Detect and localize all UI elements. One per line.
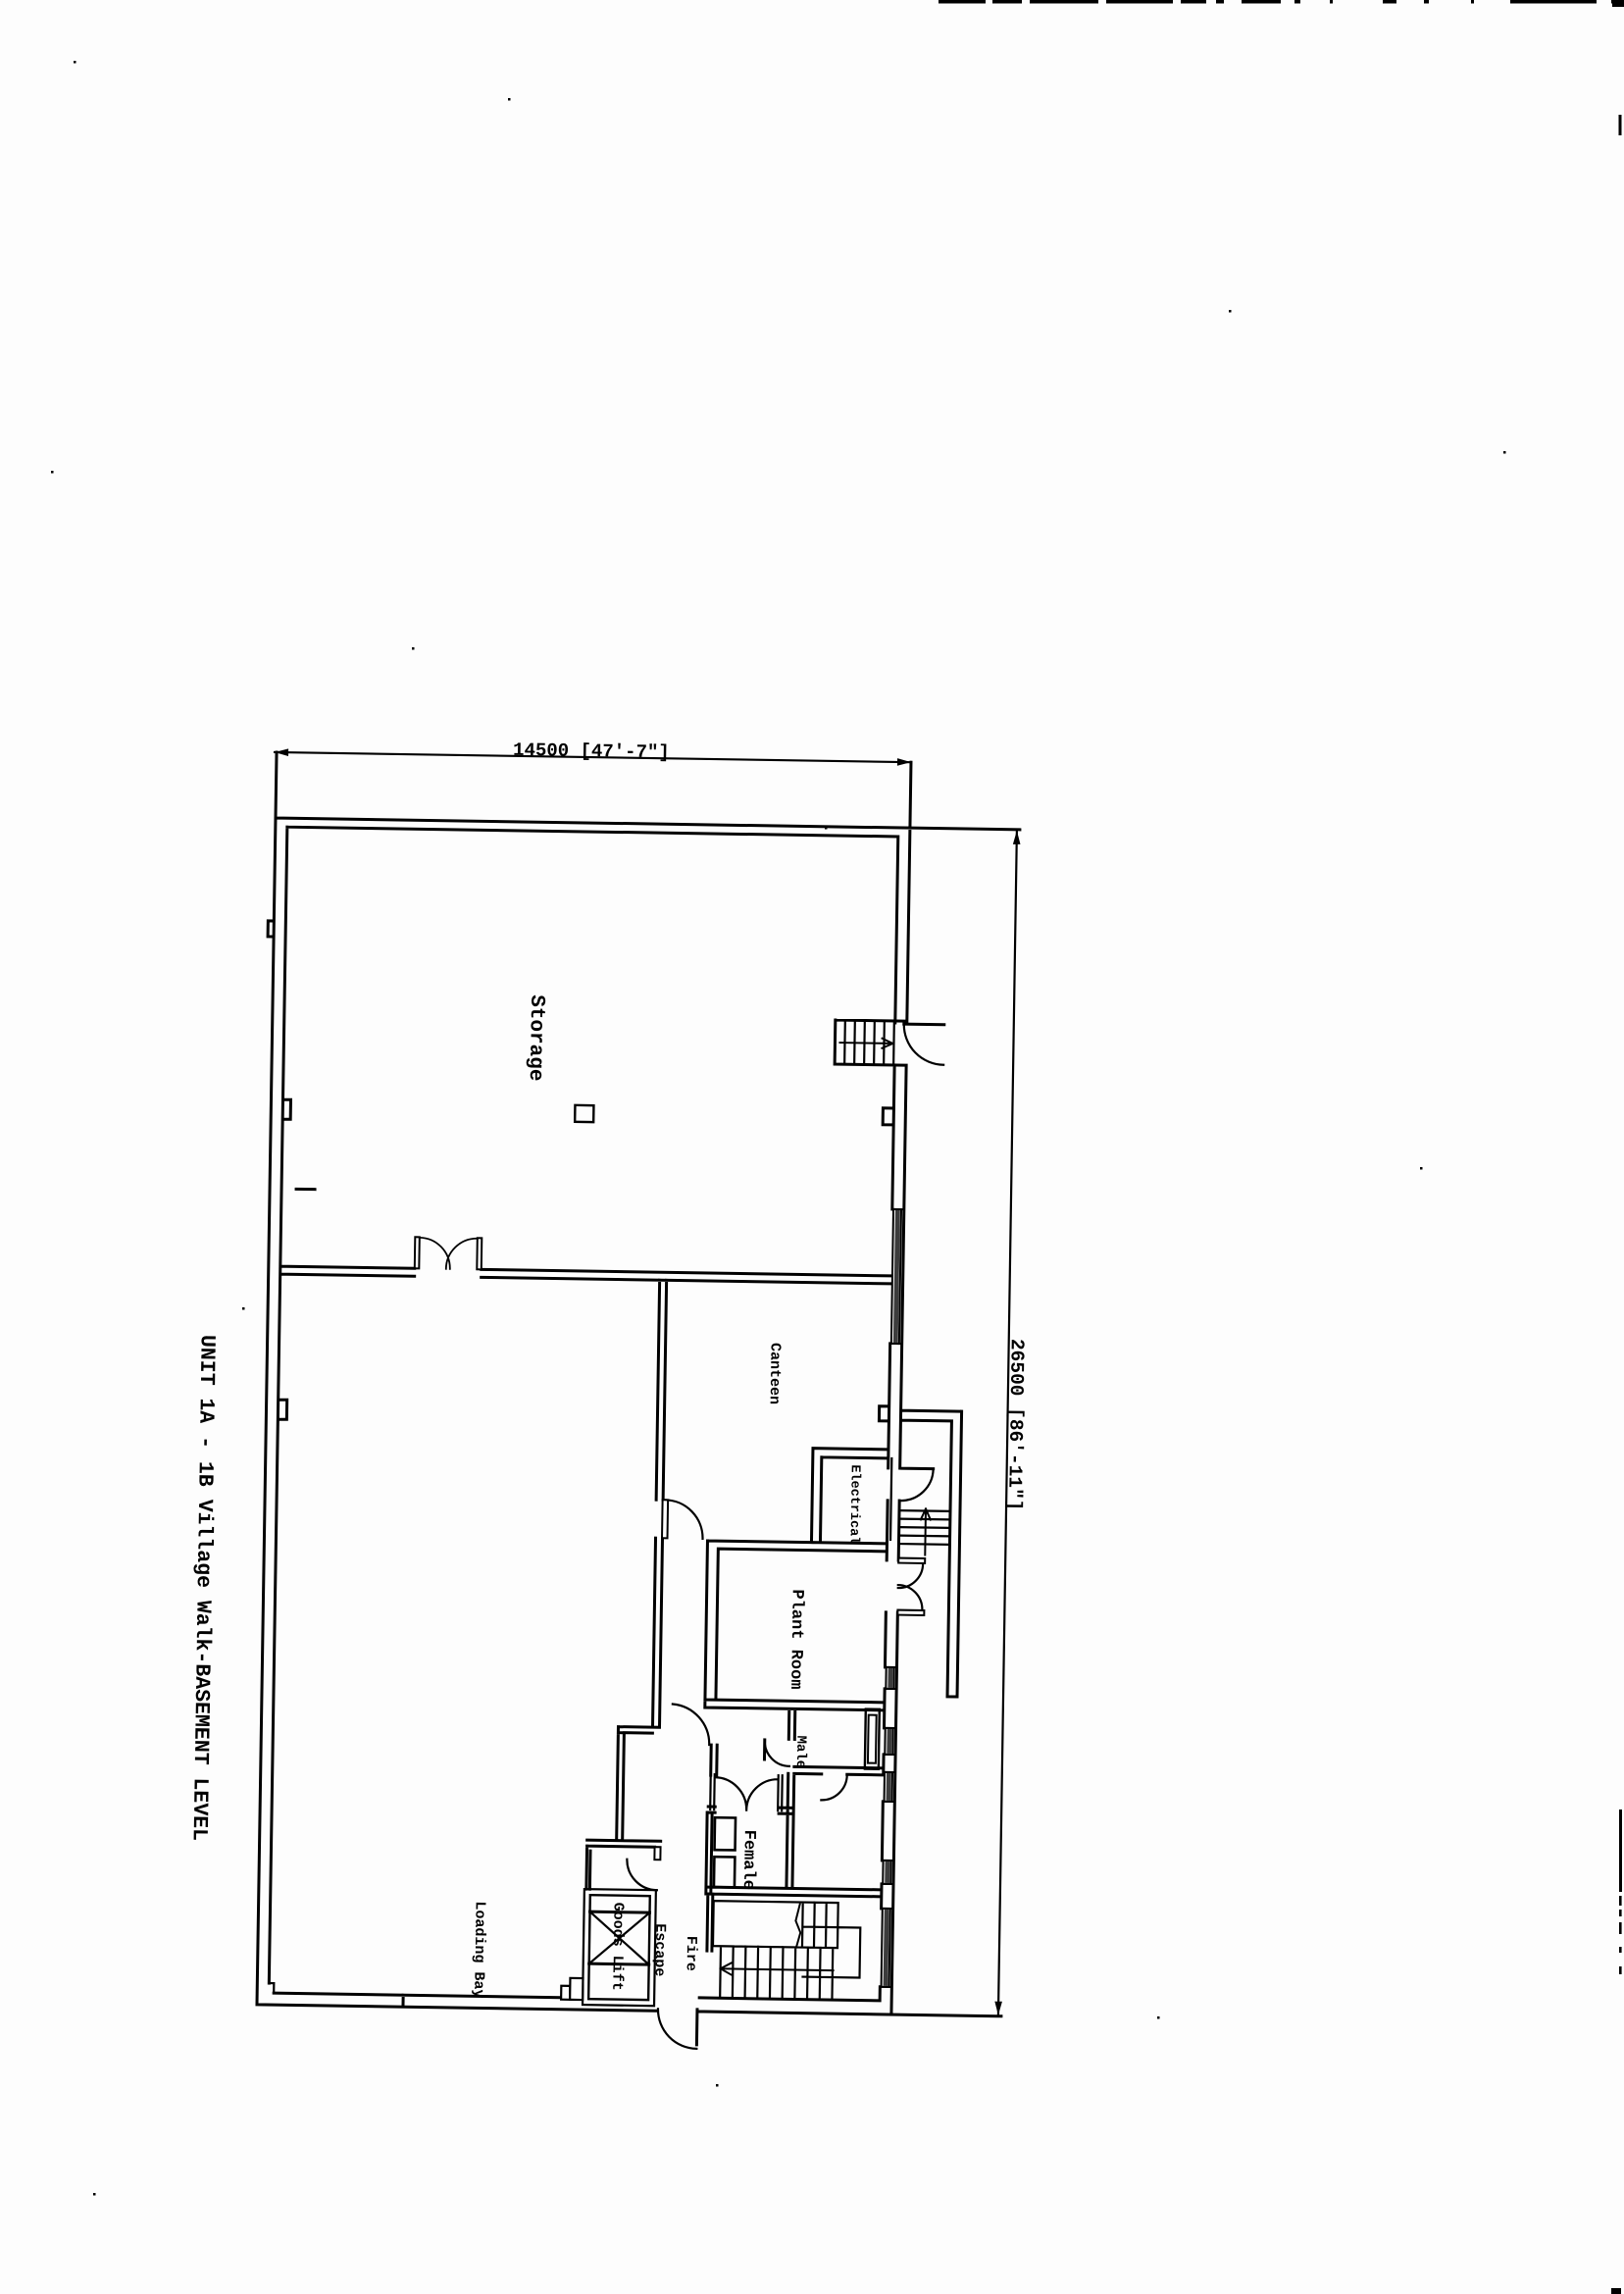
svg-text:Female: Female	[738, 1830, 758, 1891]
svg-text:Plant Room: Plant Room	[786, 1589, 806, 1689]
svg-text:Escape: Escape	[650, 1923, 668, 1976]
svg-text:Goods Lift: Goods Lift	[608, 1902, 626, 1990]
svg-text:Storage: Storage	[524, 994, 547, 1082]
svg-text:26500 [86'-11"]: 26500 [86'-11"]	[1003, 1339, 1028, 1511]
svg-text:Electrical: Electrical	[845, 1464, 861, 1544]
svg-text:Fire: Fire	[683, 1936, 700, 1971]
svg-text:14500 [47'-7"]: 14500 [47'-7"]	[513, 739, 670, 764]
svg-text:Loading Bay: Loading Bay	[470, 1901, 488, 1998]
svg-text:Canteen: Canteen	[766, 1343, 784, 1404]
svg-text:Male: Male	[792, 1735, 809, 1768]
